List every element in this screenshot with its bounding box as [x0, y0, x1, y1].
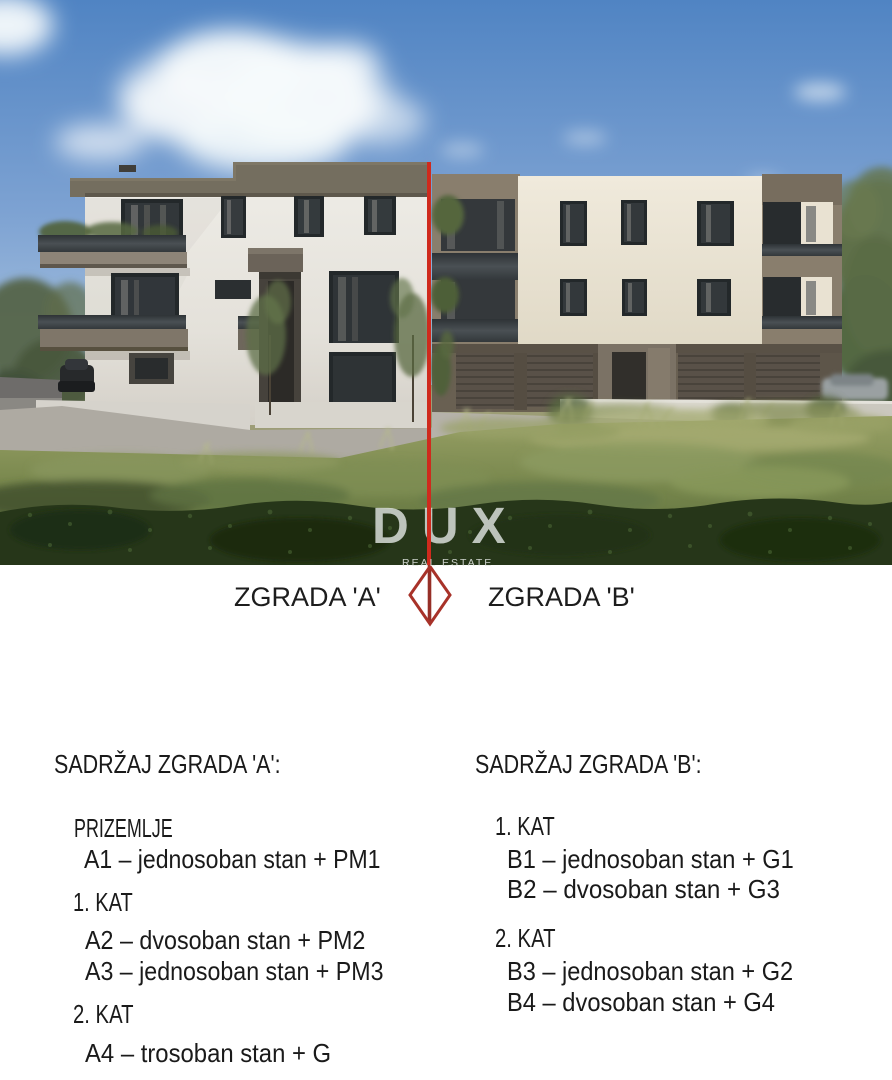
svg-text:DUX: DUX	[372, 497, 519, 554]
